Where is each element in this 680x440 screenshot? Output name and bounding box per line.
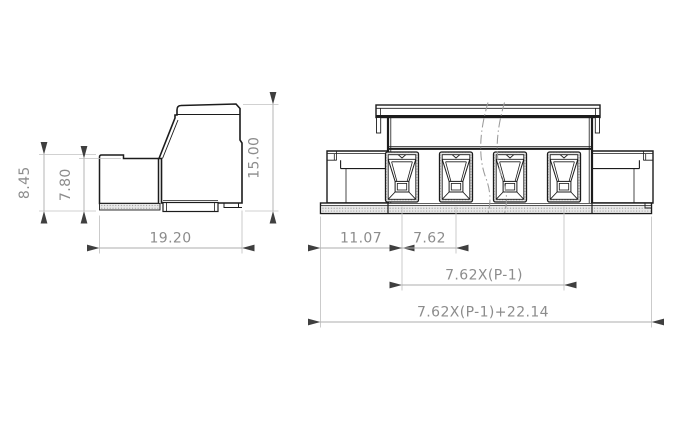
left-mounting-ear (327, 151, 388, 203)
dim-text-height-outer: 8.45 (17, 166, 33, 199)
side-wire-block (100, 155, 159, 204)
right-mounting-ear (592, 151, 653, 203)
technical-drawing-svg: 8.45 7.80 15.00 19.20 11.07 7.62 7.62X(P… (0, 0, 680, 440)
pole-opening-4 (548, 152, 581, 202)
dim-text-height-inner: 7.80 (58, 168, 74, 201)
front-view (321, 103, 654, 216)
left-side-tab (377, 118, 381, 134)
dim-text-side-width: 19.20 (149, 231, 191, 247)
pole-opening-2 (440, 152, 473, 202)
drawing-canvas: 8.45 7.80 15.00 19.20 11.07 7.62 7.62X(P… (0, 0, 680, 440)
dim-text-total-height: 15.00 (247, 137, 263, 179)
side-view (100, 104, 243, 212)
side-bottom-strip (100, 204, 161, 211)
side-housing-body (159, 104, 242, 203)
right-side-tab (595, 118, 599, 134)
pole-opening-3 (494, 152, 527, 202)
dim-text-total-width: 7.62X(P-1)+22.14 (417, 305, 549, 321)
pole-opening-1 (386, 152, 419, 202)
base-plate (321, 203, 652, 214)
side-foot (163, 203, 218, 212)
dim-text-pitch: 7.62 (413, 231, 446, 247)
dim-text-pole-span: 7.62X(P-1) (445, 268, 523, 284)
dim-text-edge-to-first-pole: 11.07 (340, 231, 382, 247)
